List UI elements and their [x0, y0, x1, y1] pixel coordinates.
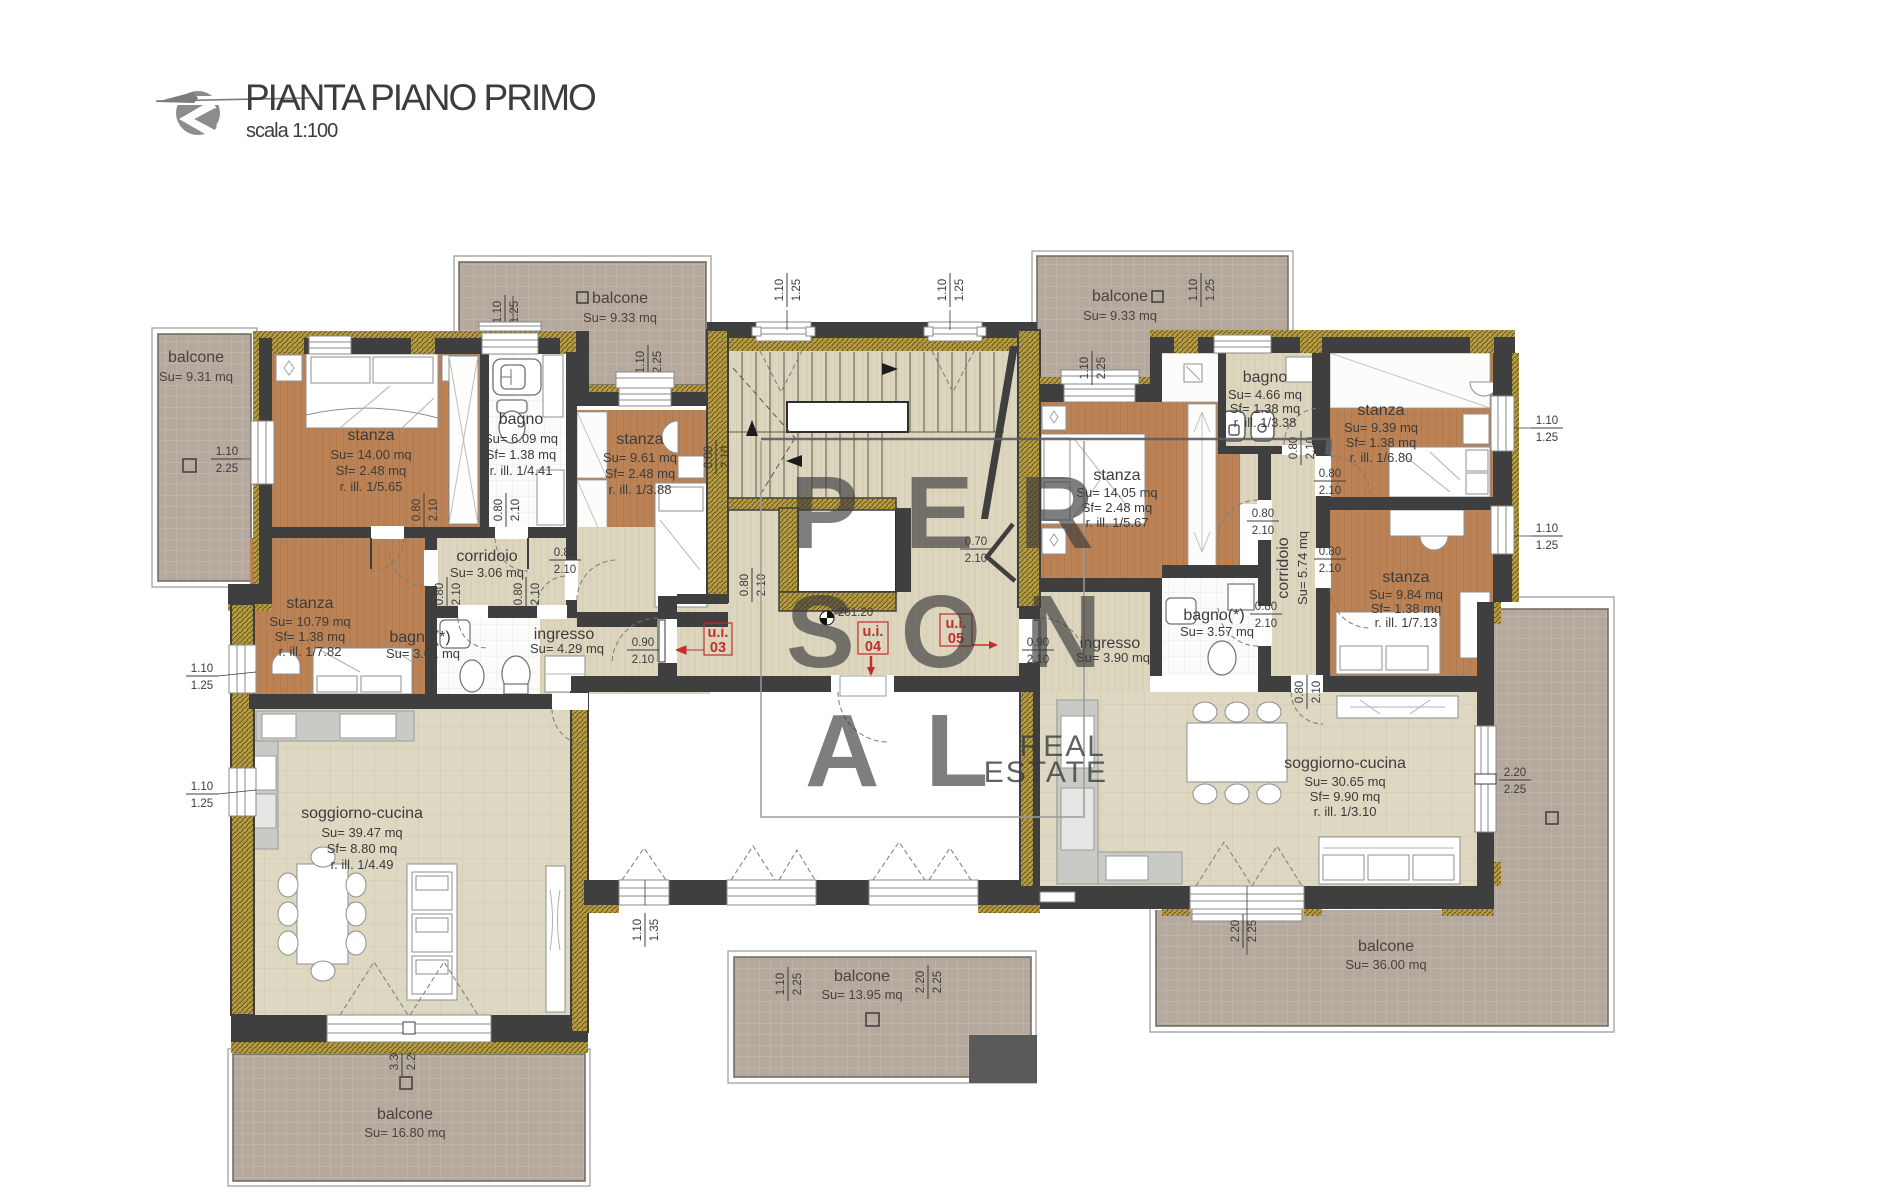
- svg-text:1.10: 1.10: [492, 301, 504, 323]
- svg-text:Su= 4.66 mq: Su= 4.66 mq: [1228, 387, 1302, 402]
- svg-text:Sf= 2.48 mq: Sf= 2.48 mq: [605, 466, 675, 481]
- svg-text:Su= 9.39 mq: Su= 9.39 mq: [1344, 420, 1418, 435]
- svg-text:1.10: 1.10: [191, 781, 213, 793]
- svg-text:2.10: 2.10: [554, 564, 576, 576]
- svg-text:2.10: 2.10: [510, 499, 522, 521]
- svg-text:Su= 9.31 mq: Su= 9.31 mq: [159, 369, 233, 384]
- svg-text:0.80: 0.80: [703, 446, 715, 468]
- svg-text:Su= 9.61 mq: Su= 9.61 mq: [603, 450, 677, 465]
- svg-text:Sf= 1.38 mq: Sf= 1.38 mq: [1371, 601, 1441, 616]
- svg-text:u.i.: u.i.: [708, 625, 729, 641]
- svg-text:Sf= 1.38 mq: Sf= 1.38 mq: [1230, 401, 1300, 416]
- svg-text:Su= 39.47 mq: Su= 39.47 mq: [321, 825, 402, 840]
- svg-text:1.10: 1.10: [216, 446, 238, 458]
- svg-text:Su= 3.06 mq: Su= 3.06 mq: [450, 565, 524, 580]
- svg-text:Su= 30.65 mq: Su= 30.65 mq: [1304, 774, 1385, 789]
- svg-text:1.25: 1.25: [954, 279, 966, 301]
- svg-text:1.10: 1.10: [937, 279, 949, 301]
- svg-text:2.20: 2.20: [1230, 920, 1242, 942]
- svg-text:Sf= 1.38 mq: Sf= 1.38 mq: [1346, 435, 1416, 450]
- svg-text:Su= 9.33 mq: Su= 9.33 mq: [583, 310, 657, 325]
- svg-text:0.80: 0.80: [1294, 681, 1306, 703]
- svg-text:1.10: 1.10: [635, 351, 647, 373]
- svg-text:0.80: 0.80: [411, 499, 423, 521]
- svg-text:1.10: 1.10: [1079, 357, 1091, 379]
- svg-text:1.10: 1.10: [1536, 415, 1558, 427]
- svg-text:1.25: 1.25: [509, 301, 521, 323]
- svg-text:balcone: balcone: [834, 968, 890, 985]
- svg-text:PIANTA PIANO PRIMO: PIANTA PIANO PRIMO: [245, 77, 596, 118]
- svg-text:1.10: 1.10: [774, 279, 786, 301]
- svg-text:0.80: 0.80: [434, 583, 446, 605]
- svg-text:0.80: 0.80: [513, 583, 525, 605]
- svg-text:Sf= 9.90 mq: Sf= 9.90 mq: [1310, 789, 1380, 804]
- svg-text:scala 1:100: scala 1:100: [246, 120, 338, 142]
- svg-text:0.80: 0.80: [1255, 601, 1277, 613]
- svg-text:2.25: 2.25: [1504, 784, 1526, 796]
- svg-text:2.20: 2.20: [1504, 767, 1526, 779]
- svg-text:Sf= 8.80 mq: Sf= 8.80 mq: [327, 841, 397, 856]
- svg-text:2.10: 2.10: [1252, 525, 1274, 537]
- svg-text:2.25: 2.25: [792, 973, 804, 995]
- svg-text:2.10: 2.10: [632, 654, 654, 666]
- svg-text:soggiorno-cucina: soggiorno-cucina: [301, 805, 423, 822]
- svg-text:2.10: 2.10: [1319, 563, 1341, 575]
- svg-text:2.20: 2.20: [915, 971, 927, 993]
- svg-text:2.10: 2.10: [428, 499, 440, 521]
- svg-text:0.90: 0.90: [632, 637, 654, 649]
- svg-text:balcone: balcone: [168, 349, 224, 366]
- svg-text:Su= 13.95 mq: Su= 13.95 mq: [821, 987, 902, 1002]
- svg-text:bagno: bagno: [499, 411, 544, 428]
- svg-text:Su= 16.80 mq: Su= 16.80 mq: [364, 1125, 445, 1140]
- svg-text:2.25: 2.25: [652, 351, 664, 373]
- svg-text:SON: SON: [786, 574, 1147, 689]
- svg-text:Su= 3.57 mq: Su= 3.57 mq: [1180, 624, 1254, 639]
- svg-text:balcone: balcone: [377, 1106, 433, 1123]
- svg-text:1.10: 1.10: [632, 919, 644, 941]
- svg-text:PER: PER: [790, 455, 1140, 570]
- svg-text:corridoio: corridoio: [1275, 537, 1292, 598]
- svg-text:Su= 9.84 mq: Su= 9.84 mq: [1369, 587, 1443, 602]
- svg-text:AL: AL: [805, 693, 1034, 808]
- svg-text:r. ill. 1/3.10: r. ill. 1/3.10: [1314, 804, 1377, 819]
- svg-text:balcone: balcone: [592, 290, 648, 307]
- svg-text:r. ill. 1/6.80: r. ill. 1/6.80: [1350, 450, 1413, 465]
- svg-text:2.25: 2.25: [216, 463, 238, 475]
- svg-text:balcone: balcone: [1358, 938, 1414, 955]
- svg-text:2.10: 2.10: [1319, 485, 1341, 497]
- svg-text:2.10: 2.10: [451, 583, 463, 605]
- svg-text:0.80: 0.80: [554, 547, 576, 559]
- svg-text:1.25: 1.25: [1536, 540, 1558, 552]
- svg-text:2.25: 2.25: [932, 971, 944, 993]
- svg-text:r. ill. 1/7.13: r. ill. 1/7.13: [1375, 615, 1438, 630]
- svg-text:soggiorno-cucina: soggiorno-cucina: [1284, 755, 1406, 772]
- svg-text:1.10: 1.10: [1536, 523, 1558, 535]
- svg-text:1.25: 1.25: [791, 279, 803, 301]
- svg-text:Sf= 1.38 mq: Sf= 1.38 mq: [486, 447, 556, 462]
- svg-text:Su= 6.09 mq: Su= 6.09 mq: [484, 431, 558, 446]
- svg-text:2.25: 2.25: [1096, 357, 1108, 379]
- svg-text:0.80: 0.80: [1319, 468, 1341, 480]
- svg-text:Sf= 1.38 mq: Sf= 1.38 mq: [275, 629, 345, 644]
- svg-text:Su= 14.00 mq: Su= 14.00 mq: [330, 447, 411, 462]
- svg-text:Su= 3.01 mq: Su= 3.01 mq: [386, 646, 460, 661]
- svg-text:0.80: 0.80: [739, 574, 751, 596]
- svg-text:1.25: 1.25: [191, 680, 213, 692]
- svg-text:Sf= 2.48 mq: Sf= 2.48 mq: [336, 463, 406, 478]
- svg-text:stanza: stanza: [1357, 402, 1404, 419]
- svg-text:bagno(*): bagno(*): [389, 629, 450, 646]
- svg-text:0.80: 0.80: [1252, 508, 1274, 520]
- svg-text:ESTATE: ESTATE: [984, 756, 1108, 789]
- svg-text:2.10: 2.10: [1255, 618, 1277, 630]
- svg-text:corridoio: corridoio: [456, 548, 517, 565]
- svg-text:2.10: 2.10: [1311, 681, 1323, 703]
- svg-text:Su= 36.00 mq: Su= 36.00 mq: [1345, 957, 1426, 972]
- svg-text:2.25: 2.25: [1247, 920, 1259, 942]
- svg-text:Su= 10.79 mq: Su= 10.79 mq: [269, 614, 350, 629]
- svg-text:r. ill. 1/3.38: r. ill. 1/3.38: [1234, 415, 1297, 430]
- svg-text:1.35: 1.35: [649, 919, 661, 941]
- svg-text:1.25: 1.25: [191, 798, 213, 810]
- svg-text:1.10: 1.10: [1188, 279, 1200, 301]
- svg-text:bagno(*): bagno(*): [1183, 607, 1244, 624]
- svg-text:r. ill. 1/3.88: r. ill. 1/3.88: [609, 482, 672, 497]
- svg-text:stanza: stanza: [347, 427, 394, 444]
- svg-text:0.80: 0.80: [493, 499, 505, 521]
- svg-text:0.80: 0.80: [1319, 546, 1341, 558]
- svg-text:1.25: 1.25: [1536, 432, 1558, 444]
- svg-text:1.10: 1.10: [775, 973, 787, 995]
- svg-text:stanza: stanza: [1382, 569, 1429, 586]
- svg-text:Su= 5.74 mq: Su= 5.74 mq: [1295, 531, 1310, 605]
- svg-text:stanza: stanza: [616, 431, 663, 448]
- svg-text:1.10: 1.10: [191, 663, 213, 675]
- svg-text:r. ill. 1/5.65: r. ill. 1/5.65: [340, 479, 403, 494]
- svg-text:03: 03: [710, 640, 726, 656]
- svg-text:bagno: bagno: [1243, 369, 1288, 386]
- svg-text:2.10: 2.10: [530, 583, 542, 605]
- svg-text:2.10: 2.10: [720, 446, 732, 468]
- svg-text:r. ill. 1/4.49: r. ill. 1/4.49: [331, 857, 394, 872]
- svg-text:1.25: 1.25: [1205, 279, 1217, 301]
- svg-text:r. ill. 1/7.82: r. ill. 1/7.82: [279, 644, 342, 659]
- svg-text:stanza: stanza: [286, 595, 333, 612]
- svg-text:r. ill. 1/4.41: r. ill. 1/4.41: [490, 463, 553, 478]
- svg-text:Su= 4.29 mq: Su= 4.29 mq: [530, 641, 604, 656]
- svg-text:balcone: balcone: [1092, 288, 1148, 305]
- svg-text:Su= 9.33 mq: Su= 9.33 mq: [1083, 308, 1157, 323]
